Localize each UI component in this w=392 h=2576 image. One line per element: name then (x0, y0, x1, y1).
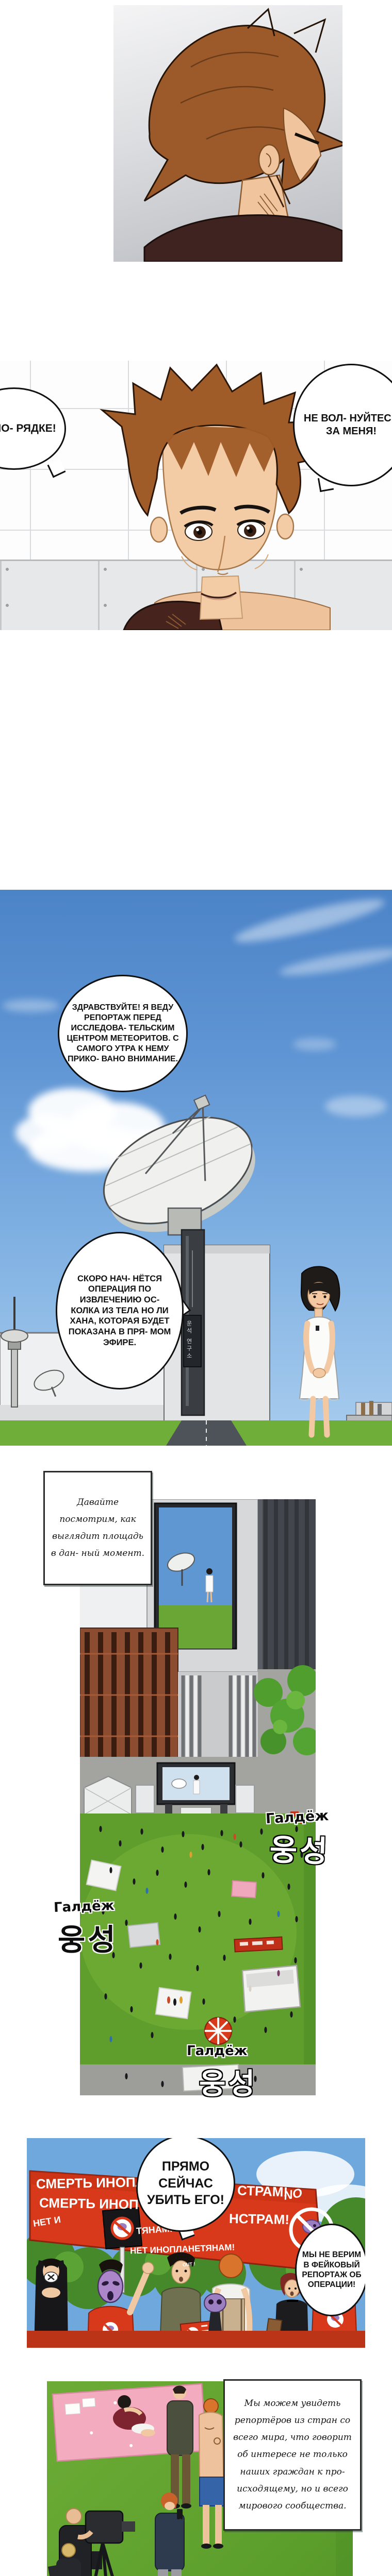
boy-back-of-head-art (113, 5, 342, 262)
walking-man-dark-tee (167, 2386, 193, 2509)
panel-1-head-back (113, 5, 342, 262)
sfx-crowd-kr-right: 웅성 (269, 1825, 331, 1871)
speech-bubble-greeting: ЗДРАВСТВУЙТЕ! Я ВЕДУ РЕПОРТАЖ ПЕРЕД ИССЛ… (58, 975, 188, 1092)
shirtless-redhead (199, 2399, 224, 2549)
caption-lets-look-at-square: Давайте посмотрим, как выглядит площадь … (43, 1471, 152, 1585)
reporter-woman (300, 1266, 339, 1435)
aerial-plaza-art (80, 1499, 316, 2095)
speech-bubble-fake-report: МЫ НЕ ВЕРИМ В ФЕЙКОВЫЙ РЕПОРТАЖ ОБ ОПЕРА… (295, 2224, 365, 2316)
sfx-crowd-ru-right: Галдёж (265, 1808, 329, 1827)
sfx-crowd-ru-left: Галдёж (54, 1898, 115, 1916)
panel-5-protest: СМЕРТЬ ИНОПЛ СМЕРТЬ ИНОП НЕТ И ТЯНАМ! СТ… (27, 2138, 365, 2348)
sfx-crowd-kr-left: 웅성 (58, 1916, 118, 1959)
building-facade-screen (155, 1503, 236, 1649)
woman-orange-bob-phone (155, 2493, 184, 2576)
sfx-crowd-ru-bottom: Галдёж (187, 2043, 248, 2059)
panel-3-research-center: 운석 연구소 ЗДРАВСТВУЙТЕ! Я ВЕДУ РЕПОРТАЖ ПЕР… (0, 890, 392, 1446)
sfx-crowd-kr-bottom: 웅성 (199, 2061, 257, 2103)
red-banner-on-lawn (234, 1937, 282, 1952)
speech-bubble-operation-soon: СКОРО НАЧ- НЁТСЯ ОПЕРАЦИЯ ПО ИЗВЛЕЧЕНИЮ … (56, 1232, 184, 1389)
panel-4-aerial-plaza (80, 1499, 316, 2095)
center-building (164, 1245, 270, 1446)
panel-2-boy-face: Я В ПО- РЯДКЕ! НЕ ВОЛ- НУЙТЕСЬ ЗА МЕНЯ! (0, 361, 392, 630)
pole-sign-korean: 운석 연구소 (185, 1320, 193, 1370)
banner-slogan-right-1: СТРАМ! (237, 2182, 288, 2200)
webtoon-page: Я В ПО- РЯДКЕ! НЕ ВОЛ- НУЙТЕСЬ ЗА МЕНЯ! (0, 0, 392, 2576)
caption-world-reporters: Мы можем увидеть репортёров из стран со … (223, 2379, 362, 2531)
research-center-art (0, 890, 392, 1446)
banner-slogan-2: СМЕРТЬ ИНОП (39, 2195, 139, 2212)
parasol (205, 2018, 232, 2044)
banner-slogan-1: СМЕРТЬ ИНОПЛ (36, 2174, 145, 2192)
red-ground (27, 2331, 365, 2348)
banner-slogan-right-2: НСТРАМ! (229, 2211, 289, 2228)
